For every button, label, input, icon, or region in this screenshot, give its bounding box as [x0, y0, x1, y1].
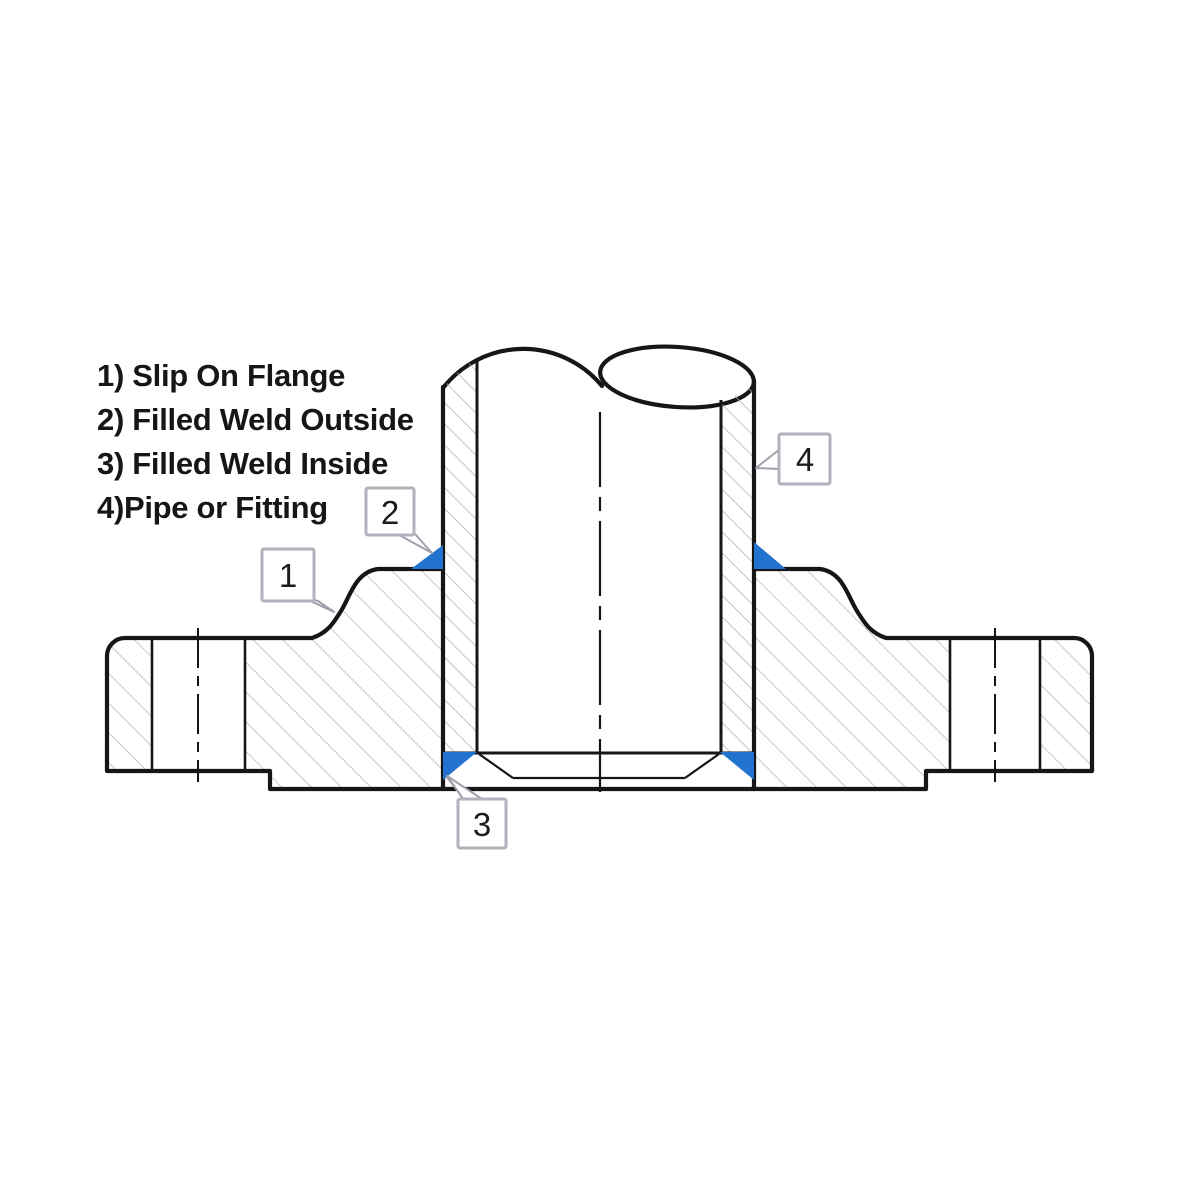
bore-chamfer-right [685, 754, 719, 778]
callout-4: 4 [756, 434, 830, 484]
bore-chamfer-left [479, 754, 513, 778]
callout-4-label: 4 [796, 441, 814, 478]
pipe-left-wall-hatch [443, 359, 477, 753]
callout-1: 1 [262, 549, 334, 612]
legend-line-1: 1) Slip On Flange [97, 354, 414, 398]
legend-line-3: 3) Filled Weld Inside [97, 442, 414, 486]
flange-weld-drawing-canvas: 1 2 3 4 1) Slip On Flange 2) Filled Weld… [0, 0, 1200, 1200]
legend-line-4: 4)Pipe or Fitting [97, 486, 414, 530]
fillet-weld-outside-right [754, 542, 786, 569]
callout-3: 3 [447, 776, 506, 848]
legend-line-2: 2) Filled Weld Outside [97, 398, 414, 442]
legend: 1) Slip On Flange 2) Filled Weld Outside… [97, 354, 414, 530]
flange-weld-diagram: 1 2 3 4 [0, 0, 1200, 1200]
flange-right-section-hatch [754, 569, 1092, 789]
callout-4-tail [756, 449, 780, 469]
pipe-right-wall-hatch [721, 380, 754, 753]
callout-1-label: 1 [279, 557, 297, 594]
fillet-weld-inside-right [720, 752, 754, 780]
callout-3-label: 3 [473, 806, 491, 843]
